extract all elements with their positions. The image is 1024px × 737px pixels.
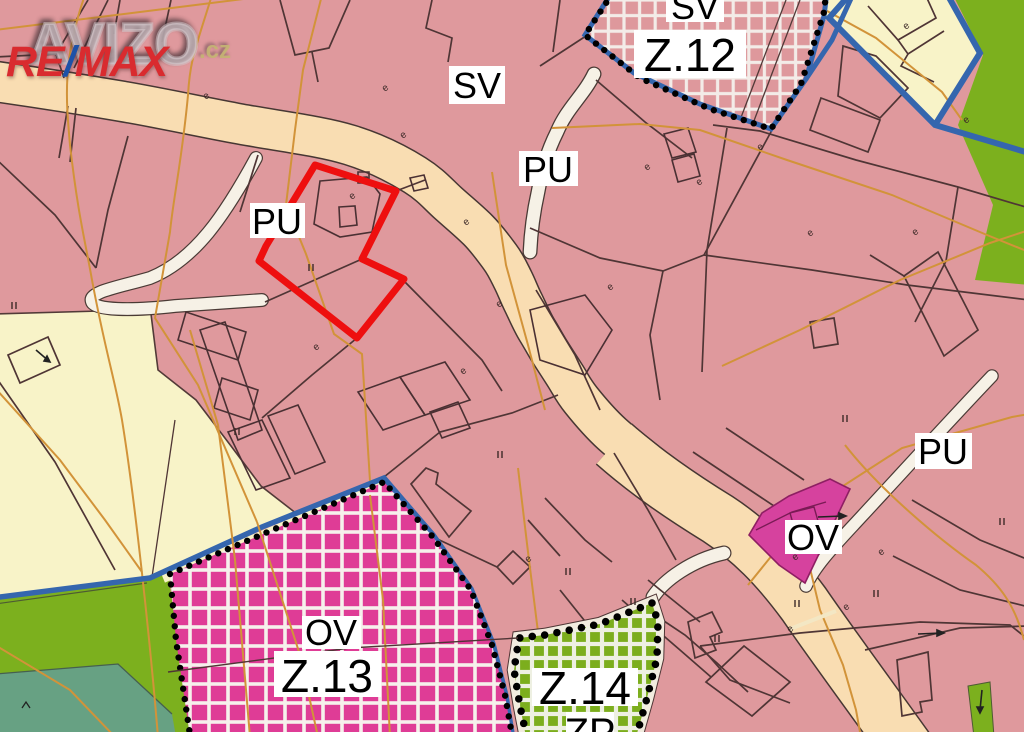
svg-text:PU: PU (523, 149, 573, 190)
svg-text:Z.13: Z.13 (281, 650, 373, 702)
svg-text:OV: OV (787, 517, 839, 558)
svg-text:SV: SV (453, 65, 501, 106)
svg-text:ZP: ZP (564, 711, 615, 732)
svg-text:Z.14: Z.14 (539, 662, 631, 714)
svg-text:.cz: .cz (199, 37, 231, 64)
svg-text:PU: PU (252, 201, 302, 242)
svg-text:RE/MAX: RE/MAX (6, 38, 171, 86)
svg-text:OV: OV (305, 612, 357, 653)
svg-text:PU: PU (918, 431, 968, 472)
svg-text:Z.12: Z.12 (644, 29, 736, 81)
svg-text:SV: SV (671, 0, 719, 27)
